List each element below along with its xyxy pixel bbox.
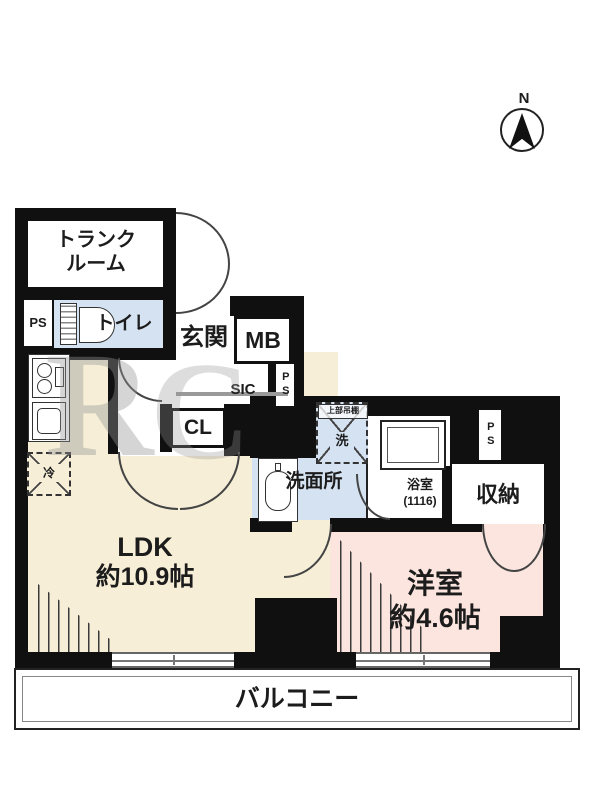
trunk-room-label-line1: トランク [30,228,162,252]
ldk-label-line2: 約10.9帖 [50,562,240,592]
bathtub-inner-icon [387,427,439,463]
bathroom-label-line2: (1116) [384,493,456,510]
balcony-label: バルコニー [14,682,580,716]
storage-label: 収納 [452,478,544,512]
watermark-letter-1: R [45,330,153,480]
ps-right-label: PS [480,411,500,459]
ps-mid-label: PS [276,364,294,406]
bathtub-icon [380,420,446,470]
washer-shelf-label: 上部吊棚 [318,404,368,419]
wall-block-mid [255,598,337,656]
western-room-label-line2: 約4.6帖 [345,602,525,634]
western-balcony-window [356,652,490,668]
compass-north-label: N [512,90,536,108]
bathroom-label-line1: 浴室 [386,476,454,494]
wall-entrance-top [230,296,290,316]
ldk-label-line1: LDK [70,530,220,564]
entrance-door-upper [176,212,230,264]
trunk-room-label-line2: ルーム [30,252,162,276]
washroom-label: 洗面所 [260,468,368,496]
floorplan-page: { "compass": { "north_label": "N" }, "wa… [0,0,600,800]
watermark-letter-2: C [150,342,251,482]
ldk-balcony-window [112,652,234,668]
washer-label: 洗 [330,432,354,450]
western-room-label-line1: 洋室 [360,566,510,602]
